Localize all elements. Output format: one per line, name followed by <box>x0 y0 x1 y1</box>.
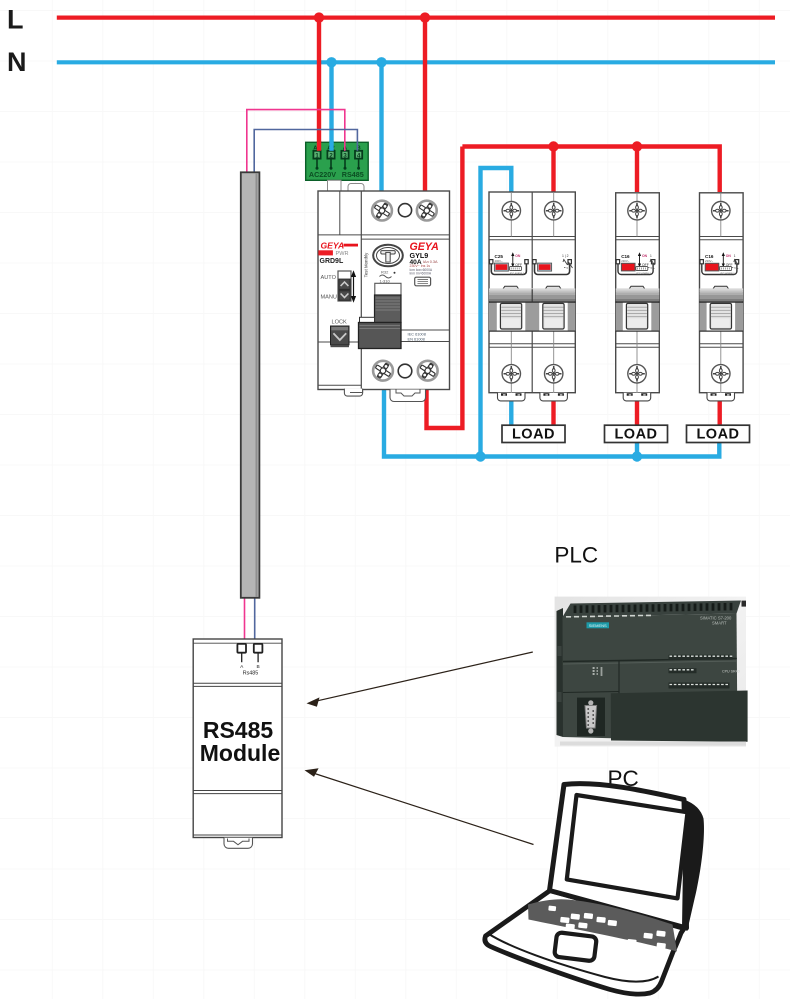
svg-text:PLC: PLC <box>554 543 598 568</box>
svg-text:1: 1 <box>315 153 319 160</box>
svg-text:RS485: RS485 <box>203 717 274 743</box>
svg-text:LOAD: LOAD <box>696 427 739 443</box>
svg-text:Inm Im=6000A: Inm Im=6000A <box>410 271 432 275</box>
svg-text:1 | 2: 1 | 2 <box>562 254 569 258</box>
svg-text:IEC 60898-1: IEC 60898-1 <box>636 271 651 275</box>
svg-text:EN 61008: EN 61008 <box>408 336 425 341</box>
svg-text:Module: Module <box>200 740 281 766</box>
svg-text:1: 1 <box>734 254 736 258</box>
svg-text:LOCK: LOCK <box>332 319 348 325</box>
svg-text:L: L <box>7 5 24 35</box>
svg-text:ON: ON <box>726 254 732 258</box>
svg-text:Test Monthly: Test Monthly <box>364 252 369 277</box>
svg-text:3: 3 <box>343 153 347 160</box>
svg-text:SIEMENS: SIEMENS <box>589 623 607 628</box>
svg-text:MANU: MANU <box>321 294 337 300</box>
svg-text:ON: ON <box>515 254 521 258</box>
svg-text:GRD9L: GRD9L <box>320 258 344 265</box>
svg-text:230V~: 230V~ <box>705 259 714 263</box>
svg-text:RS485: RS485 <box>342 170 364 179</box>
svg-text:LOAD: LOAD <box>512 427 555 443</box>
svg-text:IEC 60898-1: IEC 60898-1 <box>720 271 735 275</box>
svg-text:R32: R32 <box>381 270 389 275</box>
svg-text:CPU SR40: CPU SR40 <box>722 670 740 674</box>
svg-text:IEC 60898-1: IEC 60898-1 <box>510 271 525 275</box>
svg-text:1: 1 <box>650 254 652 258</box>
svg-text:4: 4 <box>357 153 361 160</box>
svg-text:PWR: PWR <box>336 251 349 257</box>
svg-text:400V~: 400V~ <box>495 259 504 263</box>
svg-text:B: B <box>256 664 259 670</box>
svg-text:SMART: SMART <box>712 621 727 626</box>
svg-text:AUTO: AUTO <box>321 275 337 281</box>
svg-text:Rs485: Rs485 <box>243 671 259 677</box>
svg-text:GEYA: GEYA <box>321 240 345 250</box>
svg-text:ON: ON <box>642 254 648 258</box>
svg-text:N: N <box>7 47 27 77</box>
svg-text:LOAD: LOAD <box>614 427 657 443</box>
svg-text:AC220V: AC220V <box>309 170 336 179</box>
svg-text:2: 2 <box>329 153 333 160</box>
svg-text:230V~: 230V~ <box>621 259 630 263</box>
